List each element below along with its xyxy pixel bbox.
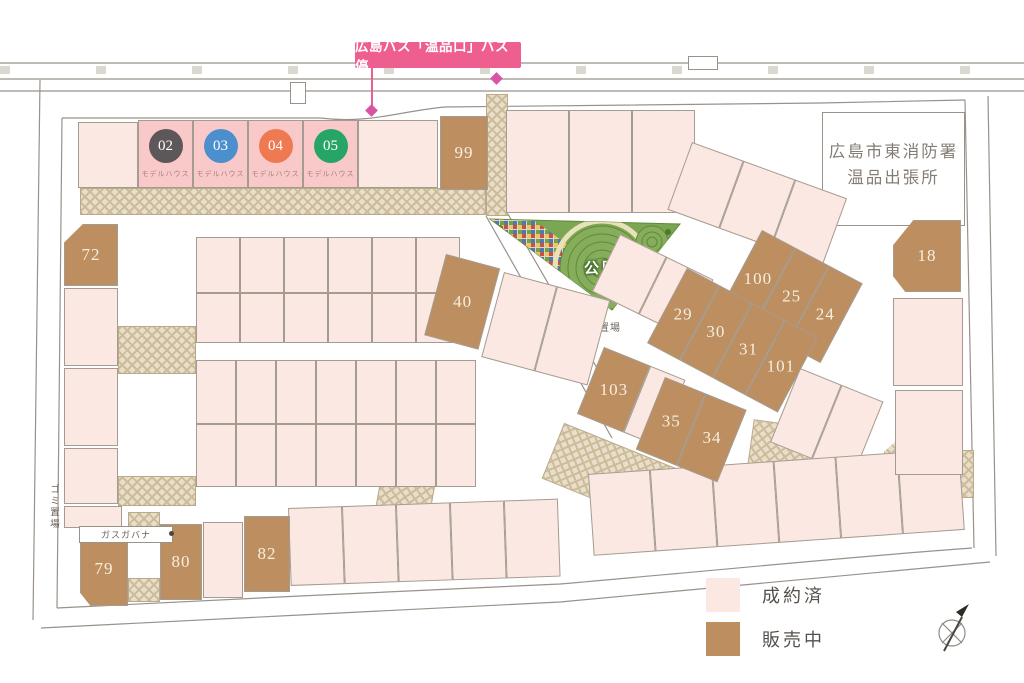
site-map: 02 モデルハウス 03 モデルハウス 04 モデルハウス 05 モデルハウス … [0,0,1024,683]
compass-icon [0,0,1024,683]
